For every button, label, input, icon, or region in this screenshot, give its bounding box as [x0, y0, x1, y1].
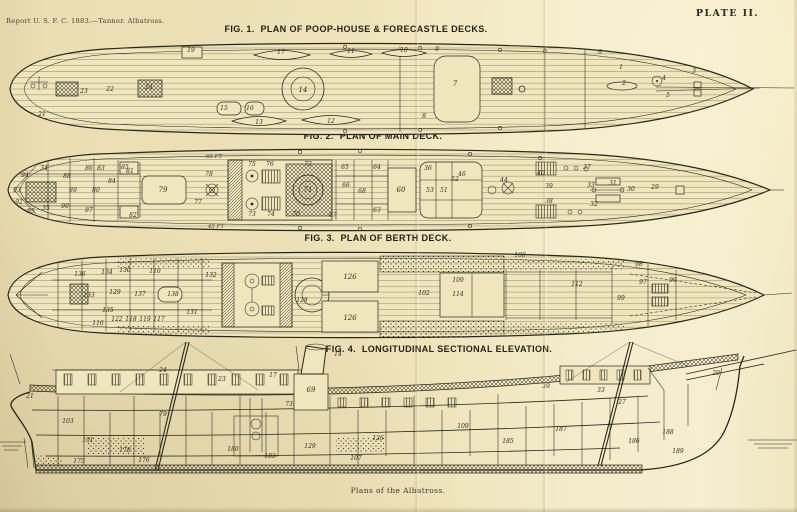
- svg-text:83: 83: [97, 165, 105, 172]
- svg-text:128: 128: [296, 297, 308, 304]
- svg-text:27: 27: [617, 399, 626, 406]
- svg-text:108: 108: [514, 252, 526, 259]
- svg-text:68: 68: [358, 188, 366, 195]
- svg-text:7: 7: [453, 80, 458, 88]
- figure-3-drawing: 1361341301101331291371351381321311281261…: [0, 248, 797, 348]
- svg-text:129: 129: [109, 289, 121, 296]
- svg-text:107: 107: [350, 455, 362, 462]
- svg-text:109: 109: [457, 423, 469, 430]
- svg-text:33: 33: [587, 182, 595, 189]
- svg-text:75: 75: [248, 161, 256, 168]
- svg-text:99: 99: [617, 295, 625, 302]
- svg-text:10: 10: [400, 47, 408, 54]
- svg-text:131: 131: [186, 309, 197, 316]
- svg-text:126: 126: [343, 273, 357, 281]
- svg-text:14: 14: [334, 351, 342, 358]
- svg-text:5: 5: [666, 92, 670, 99]
- svg-text:185: 185: [502, 438, 514, 445]
- svg-text:9: 9: [435, 46, 439, 53]
- svg-text:34: 34: [40, 165, 48, 172]
- svg-text:188: 188: [662, 429, 674, 436]
- svg-text:44: 44: [499, 177, 508, 184]
- svg-text:133: 133: [83, 292, 95, 299]
- svg-text:122: 122: [111, 316, 123, 323]
- svg-text:23: 23: [79, 88, 88, 95]
- svg-text:21: 21: [25, 393, 34, 400]
- svg-text:22: 22: [105, 86, 114, 93]
- svg-text:37: 37: [583, 164, 591, 171]
- svg-text:94: 94: [21, 172, 29, 179]
- svg-text:138: 138: [167, 291, 179, 298]
- svg-text:183: 183: [264, 453, 276, 460]
- svg-text:137: 137: [134, 291, 146, 298]
- figure-2-drawing: 9493929534358889908687838485818280797877…: [0, 146, 797, 238]
- svg-text:90: 90: [61, 203, 69, 210]
- svg-text:86: 86: [85, 165, 93, 172]
- svg-text:13: 13: [255, 119, 263, 126]
- svg-text:77: 77: [194, 199, 202, 206]
- svg-text:36: 36: [424, 165, 432, 172]
- svg-text:19: 19: [187, 47, 195, 54]
- svg-text:135: 135: [102, 307, 114, 314]
- svg-text:79: 79: [159, 186, 168, 194]
- svg-text:6: 6: [598, 49, 602, 56]
- svg-text:1: 1: [619, 64, 623, 71]
- svg-text:175: 175: [73, 458, 85, 465]
- svg-text:110: 110: [149, 268, 161, 275]
- svg-text:38: 38: [545, 198, 553, 205]
- svg-text:73: 73: [248, 211, 256, 218]
- svg-text:102: 102: [418, 290, 430, 297]
- svg-text:66: 66: [342, 182, 350, 189]
- svg-text:134: 134: [101, 269, 113, 276]
- svg-text:16: 16: [246, 105, 254, 112]
- svg-text:88: 88: [63, 173, 71, 180]
- svg-text:51: 51: [440, 187, 448, 194]
- svg-text:39: 39: [545, 183, 553, 190]
- svg-text:180: 180: [227, 446, 239, 453]
- svg-text:29: 29: [650, 184, 659, 191]
- svg-text:79: 79: [159, 411, 167, 418]
- svg-text:114: 114: [452, 291, 464, 298]
- svg-text:15: 15: [220, 105, 228, 112]
- svg-text:67: 67: [329, 212, 337, 219]
- svg-text:24: 24: [144, 84, 153, 91]
- svg-text:12: 12: [327, 118, 335, 125]
- svg-text:3: 3: [692, 68, 696, 75]
- svg-text:29: 29: [711, 370, 720, 377]
- svg-text:39: 39: [542, 383, 550, 390]
- svg-text:35: 35: [42, 205, 50, 212]
- svg-text:112: 112: [571, 281, 583, 288]
- svg-text:119: 119: [139, 316, 151, 323]
- svg-text:96: 96: [669, 277, 677, 284]
- svg-text:98: 98: [635, 261, 643, 268]
- figure-1-title: FIG. 1. PLAN OF POOP-HOUSE & FORECASTLE …: [224, 24, 487, 35]
- svg-text:76: 76: [266, 161, 274, 168]
- svg-text:109: 109: [452, 277, 464, 284]
- scan-edge-shadow-right: [793, 0, 797, 512]
- svg-text:189: 189: [672, 448, 684, 455]
- svg-text:11: 11: [347, 48, 355, 55]
- svg-text:69: 69: [307, 386, 316, 394]
- svg-text:84: 84: [108, 178, 116, 185]
- svg-text:103: 103: [62, 418, 74, 425]
- svg-text:129: 129: [304, 443, 316, 450]
- plate-number: PLATE II.: [696, 8, 759, 19]
- svg-text:21: 21: [37, 111, 46, 118]
- svg-text:80: 80: [92, 187, 100, 194]
- svg-text:2: 2: [621, 80, 626, 87]
- svg-text:63: 63: [373, 207, 381, 214]
- svg-text:178: 178: [119, 447, 131, 454]
- svg-text:97: 97: [639, 279, 647, 286]
- svg-text:81: 81: [126, 168, 134, 175]
- svg-text:8: 8: [422, 113, 426, 120]
- svg-text:23: 23: [217, 376, 226, 383]
- svg-text:65 FT: 65 FT: [206, 154, 223, 160]
- svg-text:92: 92: [15, 199, 23, 206]
- plate-caption: Plans of the Albatross.: [351, 486, 446, 495]
- svg-text:72: 72: [304, 161, 312, 168]
- svg-text:130: 130: [119, 267, 131, 274]
- svg-text:30: 30: [627, 186, 635, 193]
- svg-text:117: 117: [153, 316, 165, 323]
- svg-text:74: 74: [267, 211, 275, 218]
- svg-text:116: 116: [92, 320, 104, 327]
- svg-text:31: 31: [609, 180, 617, 187]
- svg-text:32: 32: [590, 201, 598, 208]
- svg-text:89: 89: [69, 187, 77, 194]
- svg-text:24: 24: [158, 367, 167, 374]
- svg-text:71: 71: [304, 186, 313, 194]
- svg-text:4: 4: [661, 75, 666, 82]
- svg-text:95: 95: [27, 208, 35, 215]
- svg-text:126: 126: [372, 435, 384, 442]
- svg-text:187: 187: [555, 426, 567, 433]
- svg-text:78: 78: [205, 171, 213, 178]
- svg-text:118: 118: [125, 316, 137, 323]
- svg-text:33: 33: [597, 387, 605, 394]
- svg-text:186: 186: [628, 438, 640, 445]
- svg-text:53: 53: [426, 187, 434, 194]
- svg-text:45 FT: 45 FT: [207, 224, 225, 230]
- svg-text:52: 52: [451, 176, 459, 183]
- svg-text:136: 136: [74, 271, 86, 278]
- scan-edge-shadow-bottom: [0, 507, 797, 512]
- figure-4-drawing: 2423171421697379103101178175176180183129…: [0, 340, 797, 490]
- svg-text:14: 14: [299, 86, 308, 94]
- svg-text:132: 132: [205, 272, 217, 279]
- svg-text:176: 176: [138, 457, 150, 464]
- svg-text:40: 40: [536, 170, 545, 177]
- figure-1-drawing: 19171110923222421141516131278124356: [0, 40, 797, 136]
- svg-text:60: 60: [397, 186, 406, 194]
- svg-text:126: 126: [343, 314, 357, 322]
- svg-text:70: 70: [292, 211, 300, 218]
- svg-text:93: 93: [13, 187, 21, 194]
- svg-text:82: 82: [129, 212, 137, 219]
- svg-text:17: 17: [277, 49, 285, 56]
- scanned-plate-page: Report U. S. F. C. 1883.—Tanner. Albatro…: [0, 0, 797, 512]
- svg-text:101: 101: [82, 437, 93, 444]
- report-citation: Report U. S. F. C. 1883.—Tanner. Albatro…: [6, 17, 164, 25]
- svg-text:65: 65: [341, 164, 349, 171]
- svg-text:87: 87: [85, 207, 93, 214]
- svg-text:73: 73: [285, 401, 293, 408]
- svg-text:64: 64: [373, 164, 381, 171]
- svg-text:17: 17: [269, 372, 277, 379]
